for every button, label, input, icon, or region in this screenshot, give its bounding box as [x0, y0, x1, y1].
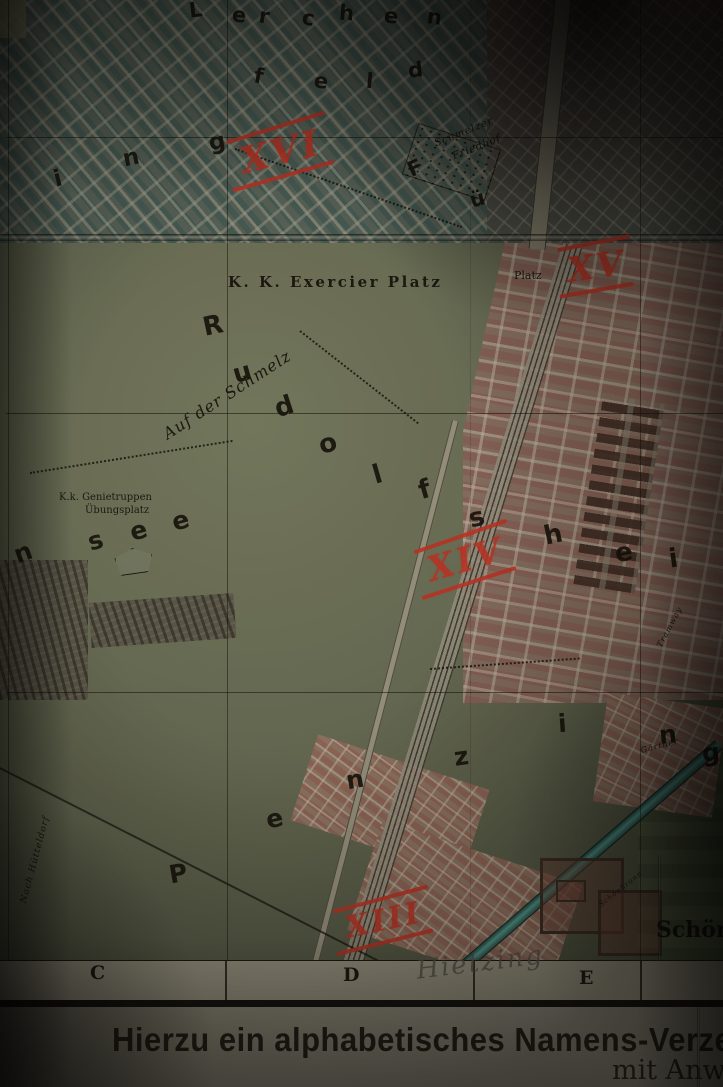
- district-number-xvi: XVI: [237, 125, 325, 180]
- district-number-xiv: XIV: [424, 533, 508, 587]
- district-letter-lerchen: e: [383, 5, 399, 27]
- grid-letter-d: D: [343, 964, 359, 986]
- district-letter-rudolfsheim: e: [613, 539, 635, 568]
- district-letter-ensee: n: [10, 538, 35, 568]
- margin-title-text: Hierzu ein alphabetisches Namens-Verze: [112, 1021, 723, 1060]
- margin-subtitle-text: mit Anw: [612, 1055, 723, 1086]
- district-number-xiii: XIII: [343, 898, 425, 943]
- district-letter-fuenf: F: [404, 156, 426, 181]
- district-letter-ensee: e: [169, 506, 192, 535]
- map-label: Platz: [514, 270, 542, 282]
- district-letter-lerchen: e: [231, 4, 247, 26]
- district-letter-lerchen: h: [338, 3, 354, 25]
- district-letter-feld: e: [313, 70, 330, 93]
- map-label: K. K. Exercier Platz: [228, 274, 442, 291]
- district-number-xv: XV: [565, 246, 628, 288]
- district-letter-lerchen: c: [300, 7, 316, 30]
- district-letter-penzing: z: [452, 743, 470, 770]
- district-number-text: XIII: [342, 895, 425, 945]
- district-letter-lerchen: L: [188, 0, 204, 22]
- map-label: Gärtner: [640, 738, 680, 756]
- district-letter-rudolfsheim: h: [541, 520, 565, 549]
- map-label: Tramway: [656, 606, 685, 650]
- district-letter-rudolfsheim: f: [416, 476, 434, 504]
- district-letter-rudolfsheim: l: [370, 461, 386, 488]
- map-label: Schönbrunn: [598, 870, 645, 909]
- district-number-text: XV: [565, 243, 629, 291]
- district-letter-penzing: P: [167, 860, 189, 888]
- fold-crease: [697, 1007, 700, 1087]
- district-letter-rudolfsheim: R: [201, 311, 226, 341]
- district-letter-ing: i: [51, 167, 64, 191]
- map-label: K.k. Genietruppen: [59, 492, 152, 503]
- map-label: Übungsplatz: [85, 505, 149, 516]
- district-letter-lerchen: n: [426, 6, 444, 29]
- district-letter-penzing: n: [344, 766, 366, 794]
- district-letter-lerchen: r: [258, 5, 271, 27]
- district-letter-rudolfsheim: o: [315, 429, 340, 459]
- district-letter-ing: n: [121, 146, 142, 172]
- label-layer: LerchenfeldingFüRudolfsheinseePenzingK. …: [0, 0, 723, 1007]
- map-label: Schönb: [656, 918, 723, 942]
- sheet-margin: Hierzu ein alphabetisches Namens-Verze m…: [0, 1007, 723, 1087]
- district-letter-feld: d: [407, 59, 424, 81]
- district-letter-ensee: s: [85, 526, 106, 554]
- district-letter-ensee: e: [127, 516, 150, 545]
- district-number-text: XIV: [423, 530, 509, 590]
- grid-letter-c: C: [90, 962, 105, 984]
- district-letter-rudolfsheim: i: [667, 546, 679, 573]
- district-letter-penzing: e: [264, 805, 286, 833]
- district-letter-feld: l: [365, 71, 374, 93]
- district-letter-penzing: g: [701, 739, 721, 765]
- district-letter-rudolfsheim: d: [271, 392, 297, 422]
- grid-letter-e: E: [579, 967, 593, 989]
- map-label: Nach Hütteldorf: [20, 815, 53, 904]
- district-number-text: XVI: [236, 122, 325, 183]
- district-letter-penzing: i: [557, 711, 567, 737]
- map-sheet: LerchenfeldingFüRudolfsheinseePenzingK. …: [0, 0, 723, 1007]
- map-photo: LerchenfeldingFüRudolfsheinseePenzingK. …: [0, 0, 723, 1087]
- district-letter-fuenf: ü: [467, 187, 487, 211]
- district-letter-ing: g: [207, 130, 227, 156]
- district-letter-feld: f: [252, 65, 265, 87]
